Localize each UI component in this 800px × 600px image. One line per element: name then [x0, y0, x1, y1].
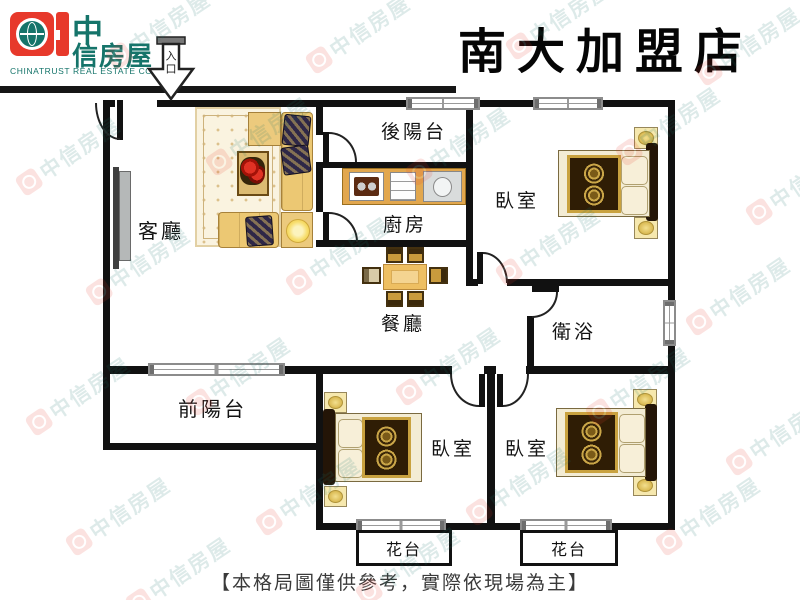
door-swing-arc	[95, 103, 120, 140]
window	[663, 300, 676, 346]
wall-segment	[103, 100, 110, 374]
pillow	[621, 186, 648, 215]
wall-segment	[283, 366, 452, 374]
brand-watermark-icon	[654, 527, 685, 558]
wall-segment	[103, 443, 323, 450]
bed-blanket	[567, 155, 621, 213]
sink	[423, 171, 462, 202]
brand-watermark-text: 中信房屋	[763, 140, 800, 216]
brand-watermark-text: 中信房屋	[83, 470, 176, 546]
throw-pillow	[281, 114, 311, 148]
brand-watermark-icon	[724, 447, 755, 478]
brand-watermark-icon	[394, 377, 425, 408]
brand-watermark: 中信房屋	[62, 470, 177, 561]
logo-notch	[54, 30, 60, 40]
throw-pillow	[245, 215, 274, 247]
globe-icon	[19, 21, 45, 47]
dining-chair	[386, 291, 403, 307]
brand-name-en: CHINATRUST REAL ESTATE CO.	[10, 66, 155, 76]
pillow	[621, 156, 648, 185]
brand-watermark: 中信房屋	[302, 0, 417, 78]
bed-blanket	[362, 417, 411, 478]
flower-box: 花台	[356, 530, 452, 566]
wall-segment	[103, 366, 110, 450]
brand-watermark-text: 中信房屋	[673, 470, 766, 546]
pillow	[619, 414, 645, 443]
wall-segment	[316, 100, 323, 135]
brand-watermark-icon	[304, 45, 335, 76]
brand-watermark-text: 中信房屋	[743, 390, 800, 466]
flower-box-label: 花台	[551, 536, 587, 560]
room-label-dining: 餐廳	[381, 309, 425, 336]
pillow	[338, 419, 363, 448]
disclaimer-text: 【本格局圖僅供參考，實際依現場為主】	[0, 568, 800, 595]
wall-segment	[507, 279, 675, 286]
room-label-front-balcony: 前陽台	[178, 393, 247, 422]
brand-watermark: 中信房屋	[742, 140, 800, 231]
tv	[119, 171, 131, 261]
door-swing-arc	[329, 212, 358, 242]
brand-watermark-text: 中信房屋	[703, 250, 796, 326]
brand-watermark-icon	[254, 507, 285, 538]
dining-chair	[407, 247, 424, 263]
brand-watermark: 中信房屋	[682, 250, 797, 341]
wall-segment	[316, 366, 323, 530]
flower-box-label: 花台	[386, 536, 422, 560]
corner-table	[248, 112, 281, 146]
brand-watermark-icon	[744, 197, 775, 228]
dining-chair	[407, 291, 424, 307]
brand-watermark-text: 中信房屋	[323, 0, 416, 64]
brand-watermark-icon	[284, 267, 315, 298]
room-label-bathroom: 衛浴	[552, 317, 596, 344]
wall-segment	[103, 366, 150, 374]
entrance-label: 入口	[162, 47, 178, 79]
cabinet-drawers	[390, 172, 416, 201]
wall-segment	[527, 316, 534, 368]
brand-watermark-icon	[14, 167, 45, 198]
dining-chair	[429, 267, 448, 284]
nightstand	[324, 486, 347, 507]
bed-blanket	[565, 412, 618, 473]
window	[148, 363, 285, 376]
brand-watermark-icon	[684, 307, 715, 338]
store-title: 南大加盟店	[458, 12, 753, 82]
door-leaf	[479, 374, 485, 407]
window	[533, 97, 603, 110]
wall-segment	[487, 374, 495, 524]
door-swing-arc	[532, 292, 558, 318]
wall-segment	[484, 366, 496, 374]
room-label-kitchen: 廚房	[383, 210, 427, 237]
pillow	[338, 449, 363, 478]
door-swing-arc	[483, 252, 508, 283]
brand-watermark-icon	[64, 527, 95, 558]
floorplan-flyer: 中 信房屋 CHINATRUST REAL ESTATE CO. 南大加盟店 入…	[0, 0, 800, 600]
room-label-living: 客廳	[138, 215, 184, 244]
throw-pillow	[280, 144, 312, 176]
room-label-bedroom-right: 臥室	[505, 434, 549, 461]
brand-watermark: 中信房屋	[22, 350, 137, 441]
lamp-icon	[286, 219, 310, 243]
dining-chair	[386, 247, 403, 263]
window	[406, 97, 480, 110]
flower-box: 花台	[520, 530, 618, 566]
dining-chair	[362, 267, 381, 284]
stove	[349, 172, 384, 201]
dining-table	[383, 264, 427, 290]
door-swing-arc	[450, 374, 479, 407]
bed-headboard	[645, 404, 657, 481]
room-label-back-balcony: 後陽台	[381, 117, 447, 144]
door-swing-arc	[329, 132, 357, 162]
wall-segment	[316, 168, 323, 212]
wall-segment	[466, 100, 473, 286]
flower-decoration	[240, 157, 265, 185]
brand-watermark-icon	[24, 407, 55, 438]
pillow	[619, 444, 645, 473]
header-divider	[0, 86, 456, 93]
brand-watermark-text: 中信房屋	[43, 350, 136, 426]
room-label-bedroom-mid: 臥室	[431, 434, 475, 461]
door-swing-arc	[503, 374, 529, 407]
bed-headboard	[323, 409, 335, 485]
room-label-bedroom-top: 臥室	[495, 186, 539, 213]
wall-segment	[526, 366, 675, 374]
brand-watermark: 中信房屋	[722, 390, 800, 481]
